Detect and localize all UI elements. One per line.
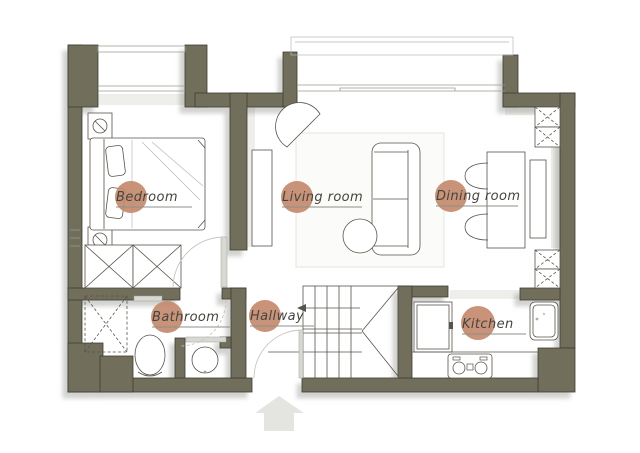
floor-plan: Bedroom Living room Dining room Bathroom… <box>0 0 640 453</box>
pillow-icon <box>105 145 126 177</box>
bed-icon <box>90 138 205 230</box>
bedroom-window <box>98 46 185 91</box>
wardrobe-x-icon <box>85 245 181 288</box>
entrance-arrow-icon <box>255 396 304 431</box>
sofa-icon <box>372 143 420 255</box>
shaft-x-icon <box>535 107 560 147</box>
room-label-text: Dining room <box>436 189 520 204</box>
coffee-table-icon <box>343 219 377 253</box>
room-label-text: Living room <box>282 190 363 205</box>
room-label-text: Bathroom <box>152 310 219 325</box>
room-label-text: Kitchen <box>462 317 514 332</box>
room-label-kitchen: Kitchen <box>461 306 526 340</box>
dining-chair-icon <box>465 214 488 240</box>
living-room-furniture <box>252 103 444 267</box>
balcony-window <box>291 37 513 91</box>
stove-icon <box>448 354 492 378</box>
toilet-icon <box>135 335 165 376</box>
shower-icon <box>85 296 127 352</box>
sideboard-icon <box>530 160 546 238</box>
tv-console-icon <box>252 150 272 246</box>
door-swing-icon <box>254 330 303 378</box>
floor-plan-drawing: Bedroom Living room Dining room Bathroom… <box>0 0 640 453</box>
entrance <box>254 330 304 431</box>
dining-chair-icon <box>465 163 488 189</box>
fridge-icon <box>414 302 453 352</box>
shaft-x-icon <box>535 250 560 288</box>
kitchen-sink-icon <box>530 302 558 340</box>
room-label-text: Bedroom <box>116 190 178 205</box>
balcony-slider-icon <box>340 88 455 91</box>
room-label-text: Hallway <box>250 309 304 324</box>
room-label-bathroom: Bathroom <box>151 301 230 333</box>
nightstand-lamp-icon <box>88 113 112 139</box>
